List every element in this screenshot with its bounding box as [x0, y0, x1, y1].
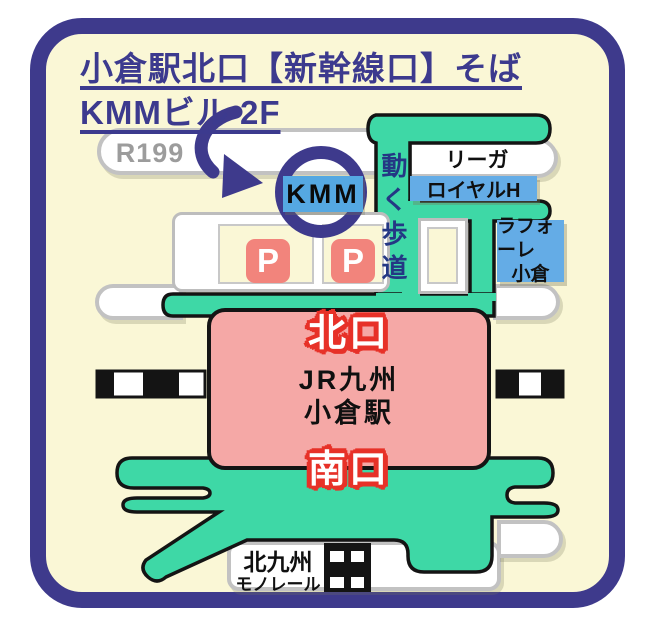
map-title-line2: KMMビル 2F	[80, 86, 281, 134]
hotel-royal-box: ロイヤルH	[410, 176, 537, 201]
parking-letter: P	[257, 242, 279, 280]
laforet-label-line1: ラフォーレ	[497, 215, 564, 263]
north-exit-label: 北口	[284, 302, 414, 357]
block-east-inner	[427, 227, 458, 284]
route-199-label: R199	[100, 138, 200, 169]
station-name-line2: 小倉駅	[247, 391, 451, 430]
parking-icon: P	[246, 239, 290, 283]
railway-crossing-left	[97, 371, 205, 397]
access-map: P P KMM ロイヤルH ラフォーレ 小倉 小倉駅北口【新幹線口】そば KMM…	[0, 0, 672, 633]
monorail-symbol	[324, 543, 371, 592]
railway-crossing-right	[497, 371, 563, 397]
parking-icon: P	[331, 239, 375, 283]
laforet-label-line2: 小倉	[511, 263, 549, 287]
map-title-line1: 小倉駅北口【新幹線口】そば	[80, 42, 522, 90]
kmm-building: KMM	[283, 176, 363, 212]
laforet-box: ラフォーレ 小倉	[497, 220, 564, 282]
parking-letter: P	[342, 242, 364, 280]
hotel-riga-label: リーガ	[412, 144, 542, 174]
kmm-label: KMM	[286, 179, 359, 210]
moving-walkway-label: 動く歩道	[376, 152, 410, 322]
hotel-royal-label: ロイヤルH	[427, 174, 521, 203]
south-exit-label: 南口	[284, 438, 414, 493]
monorail-label-line2: モノレール	[230, 570, 326, 595]
